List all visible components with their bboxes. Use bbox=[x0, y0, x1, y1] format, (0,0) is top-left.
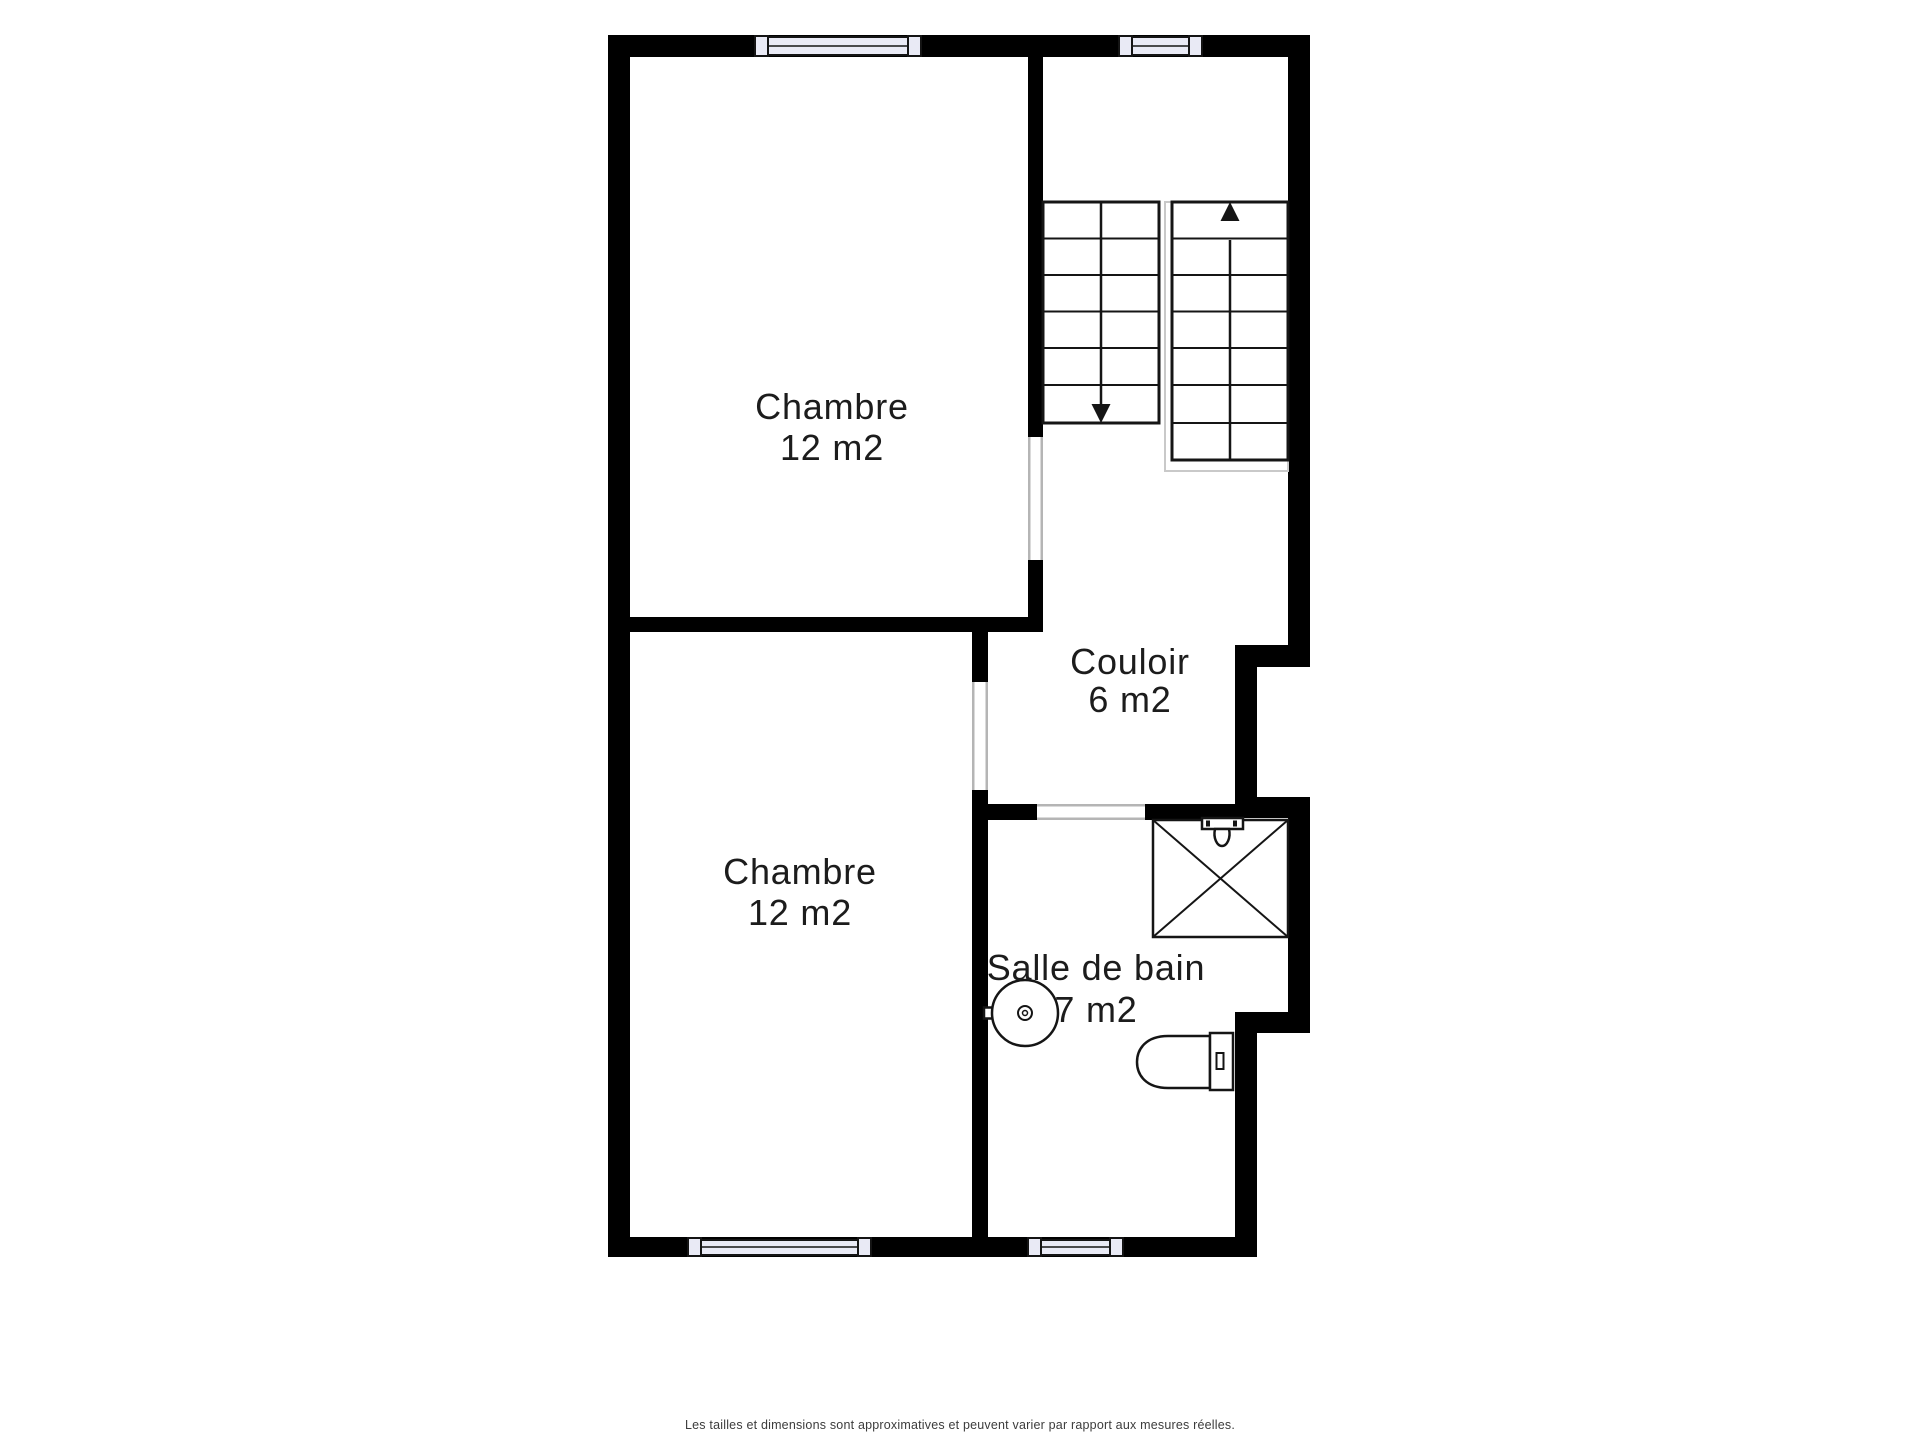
room-labels: Chambre 12 m2 Chambre 12 m2 Couloir 6 m2… bbox=[723, 386, 1205, 1030]
window-bottom-right bbox=[1028, 1238, 1123, 1256]
room-label-bedroom-bottom: Chambre bbox=[723, 851, 877, 892]
staircase bbox=[1043, 202, 1288, 471]
door-bedroom-bottom-jamb-left bbox=[972, 682, 975, 790]
wall-bedroom-top-east-upper bbox=[1028, 57, 1043, 437]
floorplan-canvas: Chambre 12 m2 Chambre 12 m2 Couloir 6 m2… bbox=[0, 0, 1920, 1440]
door-bedroom-bottom-jamb-right bbox=[986, 682, 989, 790]
wall-right-mid bbox=[1235, 645, 1257, 818]
wall-top bbox=[608, 35, 1310, 57]
room-label-bedroom-top: Chambre bbox=[755, 386, 909, 427]
wall-bathroom-north-left bbox=[988, 804, 1037, 820]
wall-right-upper bbox=[1288, 35, 1310, 667]
room-label-hallway: Couloir bbox=[1070, 641, 1190, 682]
stair-flight-up bbox=[1172, 202, 1288, 460]
room-area-bathroom: 7 m2 bbox=[1054, 989, 1137, 1030]
room-area-bedroom-bottom: 12 m2 bbox=[748, 892, 852, 933]
room-label-bathroom: Salle de bain bbox=[987, 947, 1206, 988]
door-bathroom-jamb-bottom bbox=[1037, 818, 1145, 821]
wall-right-bath-lower bbox=[1235, 1012, 1257, 1257]
footer-disclaimer: Les tailles et dimensions sont approxima… bbox=[685, 1418, 1235, 1432]
room-area-bedroom-top: 12 m2 bbox=[780, 427, 884, 468]
toilet-icon bbox=[1137, 1033, 1233, 1090]
room-area-hallway: 6 m2 bbox=[1088, 679, 1171, 720]
window-top-right bbox=[1119, 36, 1202, 56]
wall-bedroom-bottom-east-upper bbox=[972, 617, 988, 682]
door-bedroom-top-jamb-left bbox=[1028, 437, 1031, 560]
window-top-left bbox=[755, 36, 921, 56]
stair-flight-down bbox=[1043, 202, 1159, 423]
door-bathroom-jamb-top bbox=[1037, 804, 1145, 807]
shower-icon bbox=[1153, 818, 1288, 937]
wall-right-bath-upper bbox=[1288, 797, 1310, 1033]
window-bottom-left bbox=[688, 1238, 871, 1256]
door-bedroom-top-jamb-right bbox=[1041, 437, 1044, 560]
sink-icon bbox=[984, 980, 1058, 1046]
floorplan-page: Chambre 12 m2 Chambre 12 m2 Couloir 6 m2… bbox=[0, 0, 1920, 1440]
wall-left bbox=[608, 35, 630, 1257]
